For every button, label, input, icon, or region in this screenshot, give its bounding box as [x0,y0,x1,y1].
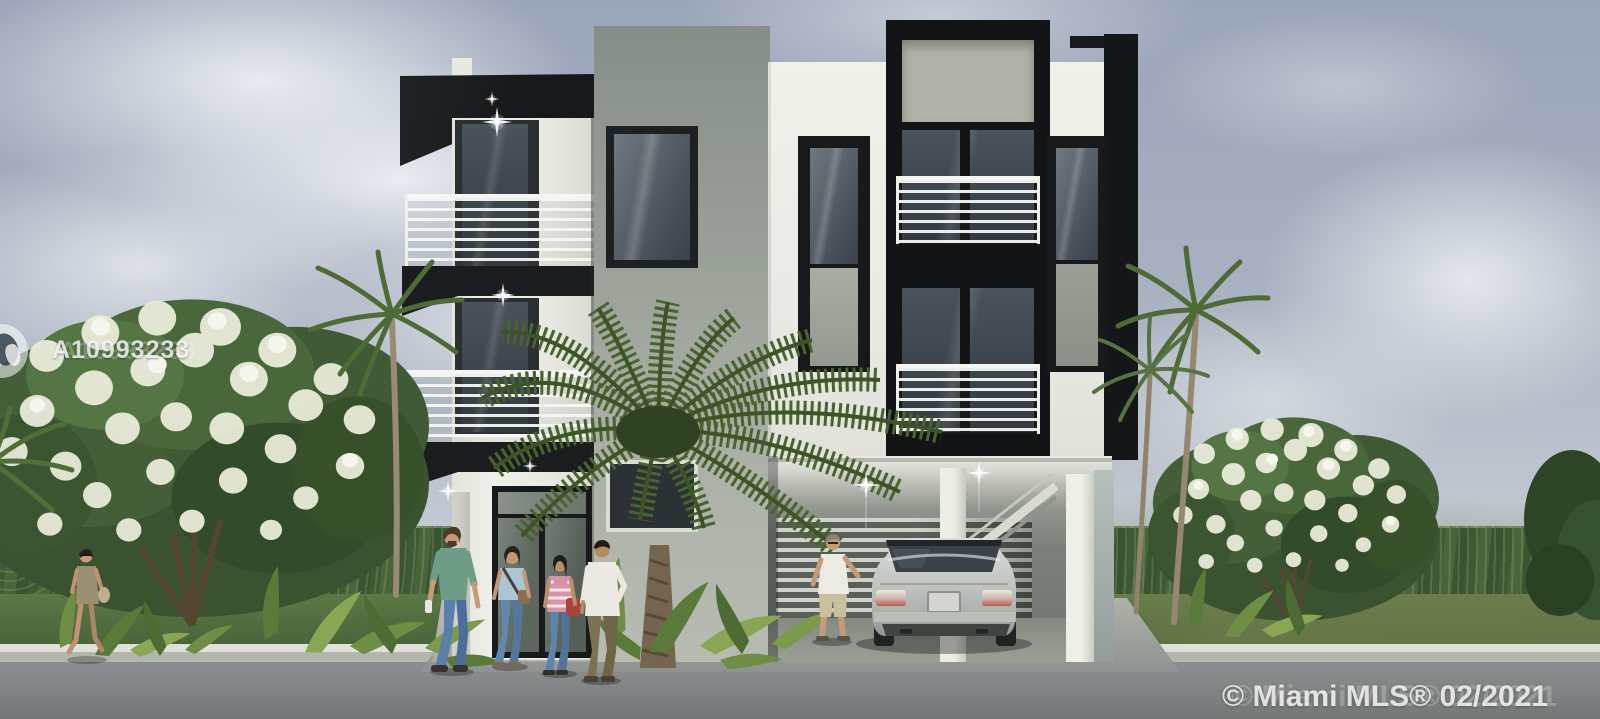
bush-far-right [1524,450,1600,620]
watermark-copyright: © Miami MLS® 02/2021 [1222,680,1548,714]
person-woman-pink [541,555,580,678]
person-man-at-car [812,534,858,646]
foreground-art [0,0,1600,719]
silver-sedan [856,538,1032,654]
person-woman-blue [492,546,530,671]
person-man-green [425,527,478,676]
listing-photo-rendering: A10993233 © Miami MLS® 02/2021 [0,0,1600,719]
watermark-mls-number: A10993233 [52,336,190,365]
